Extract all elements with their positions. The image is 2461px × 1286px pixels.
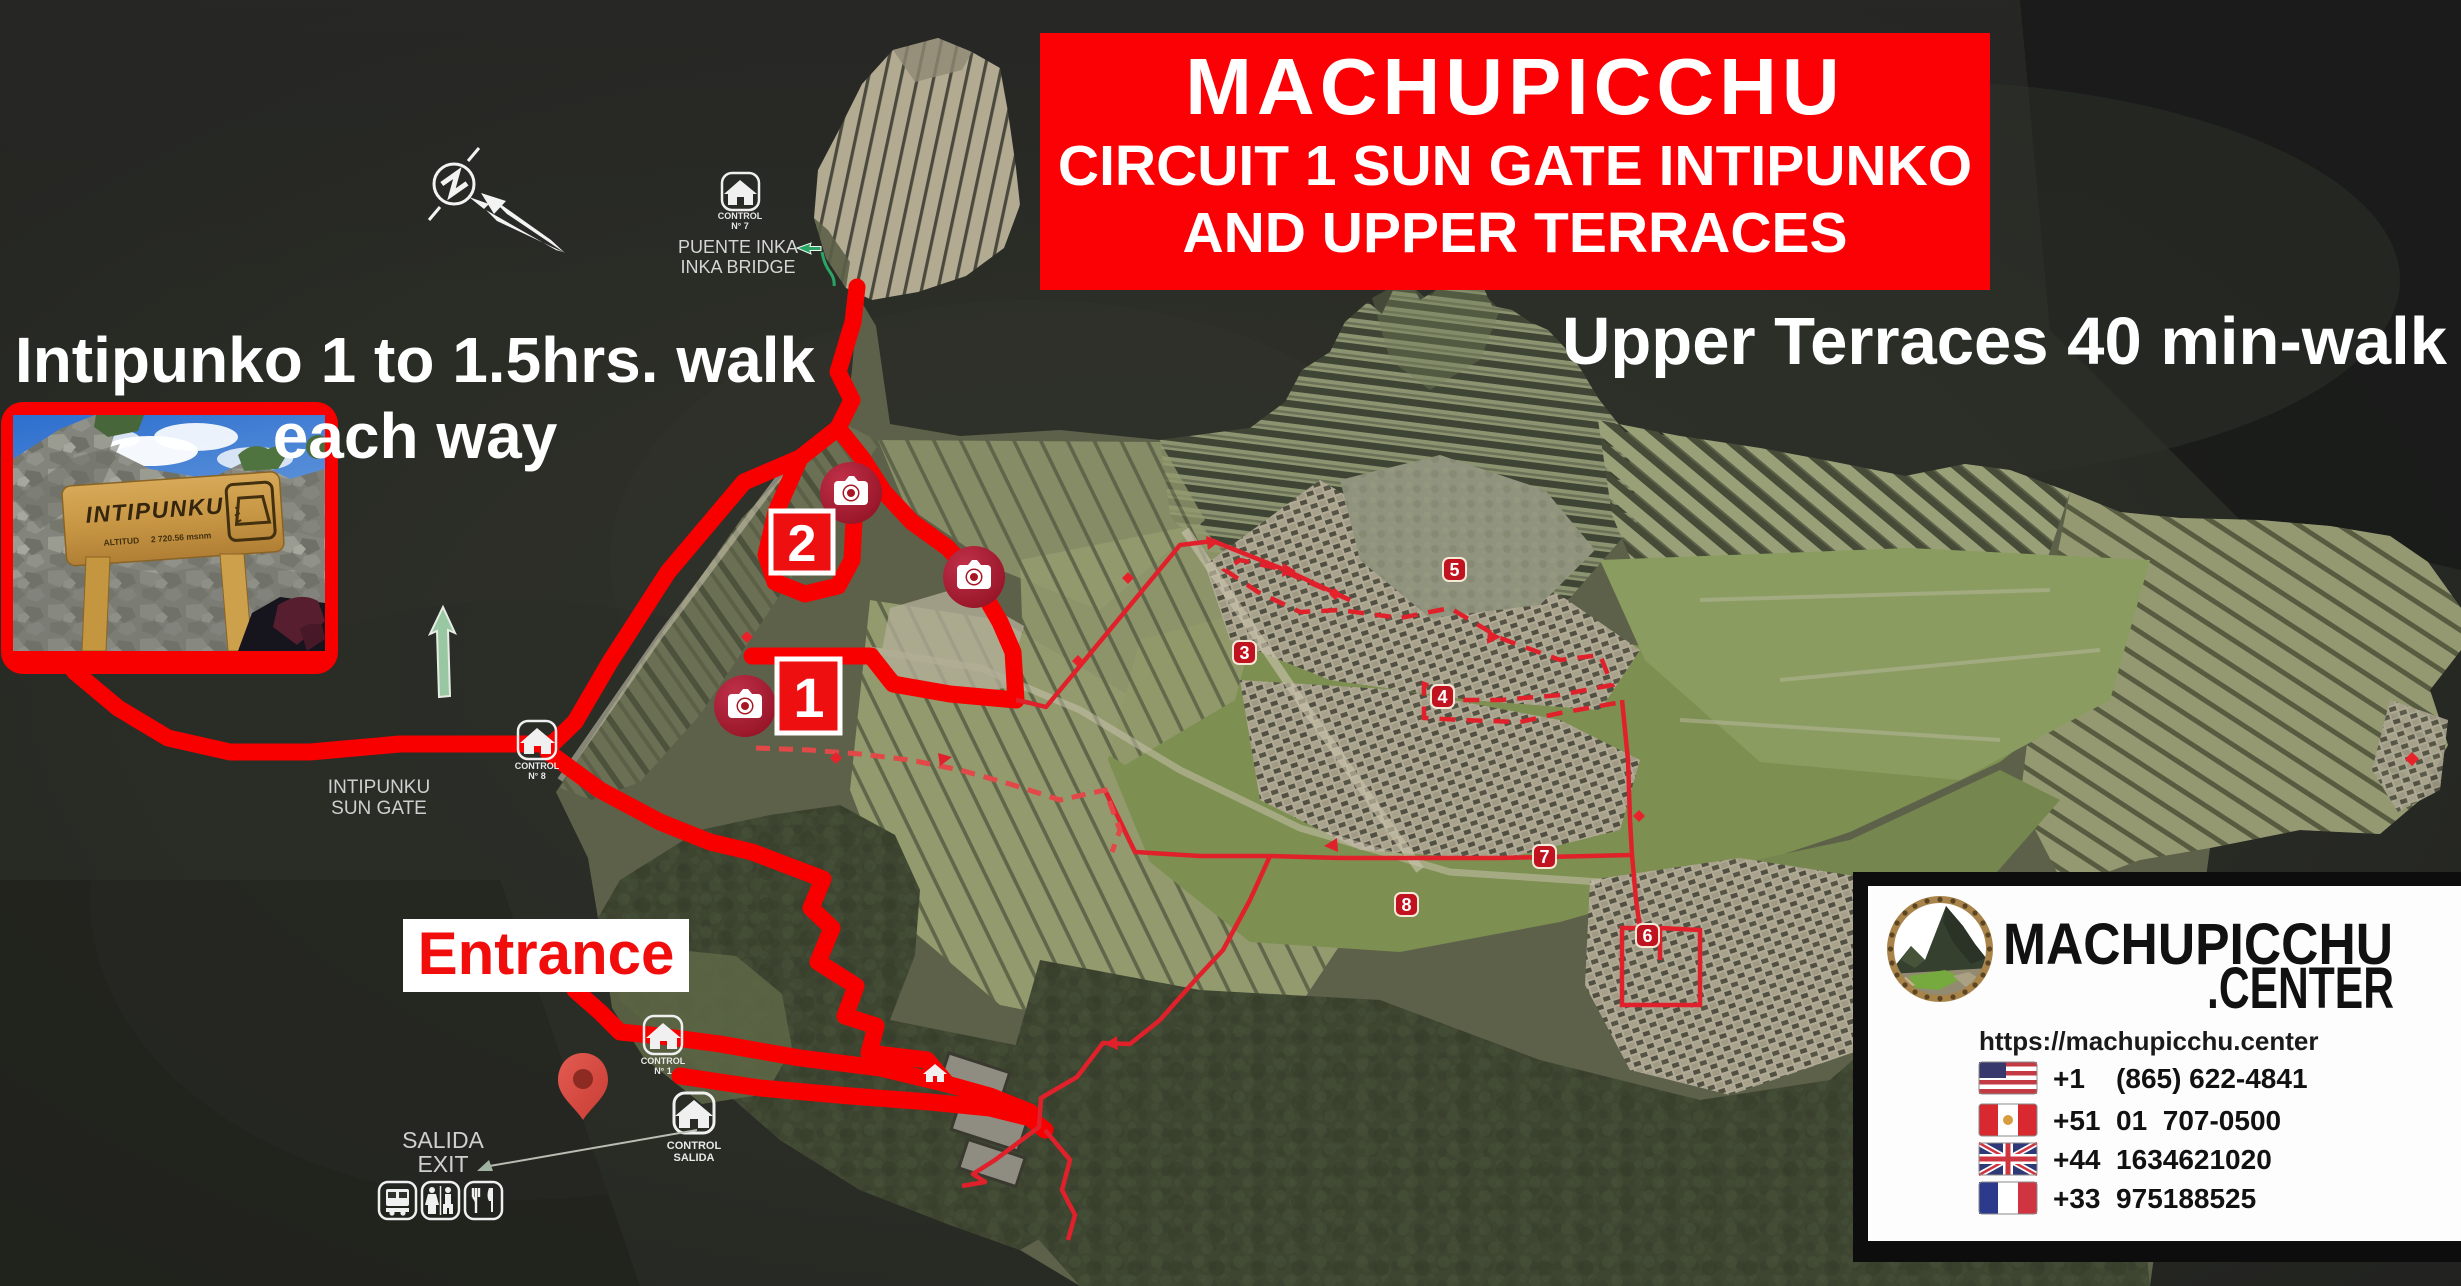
svg-text:6: 6 <box>1642 926 1652 946</box>
svg-text:5: 5 <box>1449 560 1459 580</box>
svg-text:+33 975188525: +33 975188525 <box>2053 1183 2256 1214</box>
svg-text:CONTROL: CONTROL <box>641 1056 686 1066</box>
svg-text:CONTROL: CONTROL <box>667 1140 722 1152</box>
svg-text:4: 4 <box>1437 687 1447 707</box>
svg-text:3: 3 <box>1239 643 1249 663</box>
svg-text:PUENTE INKA: PUENTE INKA <box>678 237 798 257</box>
svg-text:INTIPUNKU: INTIPUNKU <box>328 777 430 798</box>
svg-text:SALIDA: SALIDA <box>674 1152 715 1164</box>
svg-text:N° 8: N° 8 <box>528 771 546 781</box>
svg-text:7: 7 <box>1539 847 1549 867</box>
svg-text:8: 8 <box>1401 895 1411 915</box>
svg-text:+51 01 707-0500: +51 01 707-0500 <box>2053 1105 2281 1136</box>
svg-text:CONTROL: CONTROL <box>515 761 560 771</box>
svg-text:.CENTER: .CENTER <box>2207 956 2394 1021</box>
svg-text:+1 (865) 622-4841: +1 (865) 622-4841 <box>2053 1063 2308 1094</box>
svg-text:2: 2 <box>788 515 817 573</box>
svg-text:EXIT: EXIT <box>417 1151 468 1177</box>
svg-text:1: 1 <box>793 666 824 729</box>
svg-text:N° 7: N° 7 <box>731 221 749 231</box>
svg-text:https://machupicchu.center: https://machupicchu.center <box>1979 1026 2319 1056</box>
svg-text:INKA BRIDGE: INKA BRIDGE <box>680 257 795 277</box>
svg-text:+44 1634621020: +44 1634621020 <box>2053 1144 2272 1175</box>
svg-text:N° 1: N° 1 <box>654 1066 672 1076</box>
svg-text:SUN GATE: SUN GATE <box>331 798 427 819</box>
svg-text:SALIDA: SALIDA <box>402 1127 484 1153</box>
svg-text:CONTROL: CONTROL <box>718 211 763 221</box>
